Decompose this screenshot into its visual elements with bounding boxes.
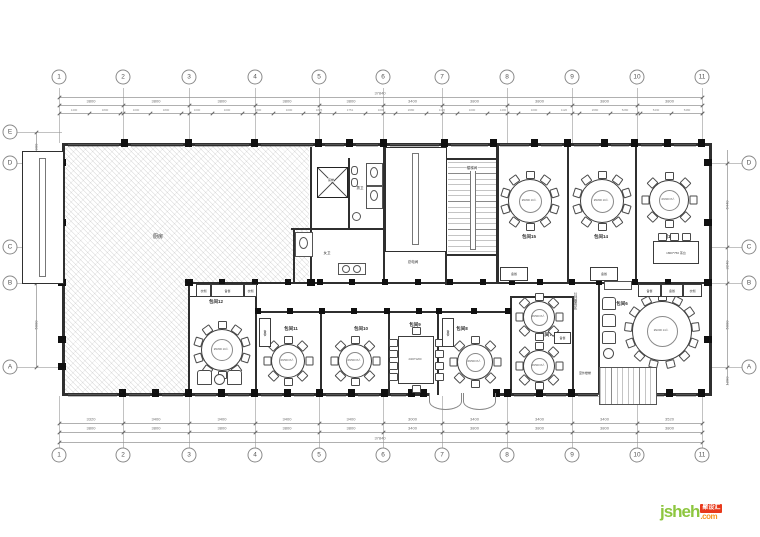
dimension-tick [57,440,61,444]
dimension-tick [210,111,214,115]
chair [515,313,523,322]
grid-bubble-bottom: 6 [376,448,391,463]
main-stair-rail [412,153,419,245]
dimension-text: 3400 [218,417,227,422]
dimension-text: 3800 [152,426,161,431]
dimension-text: 2680 [408,108,414,112]
dimension-text: 3800 [347,426,356,431]
chair [550,204,560,215]
dimension-text: 6440 [725,201,730,210]
chair [284,336,293,344]
dimension-tick [700,103,704,107]
chair [622,187,632,198]
dimension-text: 3800 [87,99,96,104]
dimension-text: 5000 [34,321,39,330]
wall [496,143,499,284]
window [514,394,534,399]
window [676,394,696,399]
dimension-text: 5280 [622,108,628,112]
service-zone-label: 公共服务区 [574,292,579,310]
window [574,144,599,149]
sofa-chair [197,370,212,385]
column [416,308,422,314]
dimension-line [59,442,702,443]
dimension-text: 2680 [592,108,598,112]
tea-table: 1800*750 茶台 [653,241,699,264]
wc-toilet [370,190,378,201]
chair [351,336,360,344]
window [541,144,562,149]
dimension-tick [505,103,509,107]
dimension-tick [121,103,125,107]
wc-sink [352,212,361,221]
chair [598,171,607,179]
tea-chair [670,233,679,241]
window [129,394,150,399]
chair [665,172,674,180]
column [536,389,543,397]
grid-bubble-top: 4 [248,70,263,85]
chair [435,362,444,370]
dimension-text: 3800 [347,99,356,104]
grid-line [17,132,62,133]
grid-bubble-top: 7 [435,70,450,85]
column [384,308,390,314]
column [218,389,225,397]
pantry-cabinet: 备餐 [442,318,454,347]
wall [320,311,322,395]
dimension-tick [381,421,385,425]
dimension-tick [700,421,704,425]
room-label: 包间12 [209,299,223,305]
grid-bubble-bottom: 8 [500,448,515,463]
dimension-text: 1800 [163,108,169,112]
column [316,389,323,397]
column [537,279,543,285]
column [568,389,575,397]
chair [471,336,480,344]
dimension-text: 3400 [347,417,356,422]
wc-sink [342,265,350,273]
dimension-text: 37840 [374,91,385,96]
watermark: jsheh 聚设汇 .com [660,503,722,522]
grid-bubble-right: A [742,360,757,375]
watermark-brand: jsheh [660,503,699,520]
chair [526,223,535,231]
tea-chair [658,233,667,241]
floor-plan-sheet: 11223344556677889910101111EDCBADCBA 3800… [0,0,760,537]
womens-wc-label: 女卫 [324,251,331,256]
chair [412,327,421,335]
dimension-tick [440,430,444,434]
grid-line [17,367,62,368]
grid-bubble-bottom: 11 [695,448,710,463]
dimension-text: 1120 [561,108,567,112]
dimension-tick [187,103,191,107]
dimension-tick [57,103,61,107]
food-lift [317,167,348,198]
dimension-text: 3240 [725,261,730,270]
chair [689,196,697,205]
column [436,308,442,314]
grid-bubble-right: B [742,276,757,291]
chair [598,223,607,231]
dimension-text: 3800 [600,426,609,431]
dimension-tick [34,365,38,369]
food-lift-label: 菜梯 [328,178,334,182]
dimension-text: 3000 [408,417,417,422]
dimension-text: 1000 [224,108,230,112]
grid-bubble-right: C [742,240,757,255]
lounge-side-table [603,348,614,359]
kitchen-area-hatch [64,146,309,282]
grid-bubble-bottom: 1 [52,448,67,463]
grid-bubble-bottom: 4 [248,448,263,463]
dimension-line [59,105,702,106]
window [641,144,662,149]
pantry-cabinet: 备餐 [259,318,271,347]
grid-bubble-right: D [742,156,757,171]
dimension-text: 37840 [374,436,385,441]
chair [263,357,271,366]
dimension-text: 3800 [283,99,292,104]
chair [515,362,523,371]
dimension-tick [34,130,38,134]
table-capacity-text: Ø2200 14人 [635,328,687,332]
dimension-text: 3400 [535,417,544,422]
grid-bubble-bottom: 7 [435,448,450,463]
dimension-text: 3800 [152,99,161,104]
column [704,159,712,166]
chair [389,362,398,370]
dimension-tick [700,440,704,444]
dimension-tick [725,161,729,165]
column [601,139,608,147]
dimension-line [59,432,702,433]
dimension-tick [635,430,639,434]
window [326,394,346,399]
dimension-text: 3400 [470,417,479,422]
cloak-cabinet: 衣帽 [196,284,211,297]
wc-urinal [351,178,358,187]
dimension-tick [57,421,61,425]
dimension-tick [121,430,125,434]
chair [241,337,251,348]
column [471,308,477,314]
table-capacity-text: Ø1500 8人 [459,359,490,363]
chair [305,357,313,366]
dimension-text: 3400 [600,417,609,422]
entrance-arch [429,393,462,410]
dimension-tick [725,245,729,249]
dimension-tick [57,95,61,99]
dimension-tick [570,421,574,425]
table-size-text: 2400*1200 [394,357,435,361]
grid-bubble-left: D [3,156,18,171]
chair [622,204,632,215]
dimension-text: 3800 [535,426,544,431]
pantry-cabinet: 备餐 [661,284,683,297]
grid-bubble-top: 11 [695,70,710,85]
dimension-text: 3800 [470,426,479,431]
dimension-line [59,97,702,98]
column [315,139,322,147]
dimension-text: 1000 [377,108,383,112]
column [255,308,261,314]
column [349,279,355,285]
wall [348,158,350,230]
window [162,394,183,399]
chair [641,196,649,205]
chair [688,337,699,348]
column [564,139,571,147]
dimension-tick [725,365,729,369]
column [704,279,712,286]
column [287,308,293,314]
dimension-tick [253,430,257,434]
wc-urinal [351,166,358,175]
room-label: 包间6 [616,301,628,307]
window [325,144,344,149]
dimension-text: 1000 [530,108,536,112]
pantry-cabinet: 备餐 [500,267,528,281]
column [447,279,453,285]
dimension-tick [440,421,444,425]
dimension-text: 1825 [316,108,322,112]
table-capacity-text: Ø1500 8人 [273,358,302,362]
dimension-line [59,113,702,114]
column [284,389,291,397]
dimension-tick [440,103,444,107]
window [451,144,488,149]
dimension-tick [121,421,125,425]
chair [435,350,444,358]
tea-chair [682,233,691,241]
dimension-text: 5430 [653,108,659,112]
wc-toilet [370,167,378,178]
table-capacity-text: Ø1500 8人 [525,314,552,318]
window [261,394,282,399]
chair [535,382,544,390]
wc-sink [353,265,361,273]
dimension-text: 3400 [408,426,417,431]
chair [555,313,563,322]
stairwell-rail [470,168,476,250]
kitchen-area-hatch-lower [64,282,188,393]
kitchen-label: 厨房 [153,233,163,240]
pantry-cabinet: 备餐 [211,284,244,297]
column [504,389,511,397]
dimension-text: 3800 [665,99,674,104]
pantry-cabinet: 备餐 [638,284,661,297]
wall [445,158,497,160]
dimension-text: 3800 [218,99,227,104]
se-outdoor-stair [599,367,657,405]
column [631,139,638,147]
dimension-tick [505,430,509,434]
grid-bubble-top: 2 [116,70,131,85]
chair [471,380,480,388]
column [380,139,387,147]
dimension-text: 1120 [439,108,445,112]
mens-wc-label: 男卫 [357,186,364,191]
dimension-tick [187,430,191,434]
grid-bubble-top: 9 [565,70,580,85]
dimension-tick [608,111,612,115]
window [356,144,378,149]
wall [445,254,497,256]
dimension-text: 5480 [683,108,689,112]
dimension-text: 1800 [102,108,108,112]
dimension-text: 1400 [500,108,506,112]
column [704,219,712,226]
grid-bubble-left: B [3,276,18,291]
dimension-text: 3400 [152,417,161,422]
dimension-text: 1290 [725,377,730,386]
dimension-text: 1000 [194,108,200,112]
dimension-tick [381,103,385,107]
column [698,389,705,397]
chair [284,378,293,386]
grid-bubble-top: 10 [630,70,645,85]
dimension-text: 1400 [71,108,77,112]
dimension-text: 3800 [535,99,544,104]
grid-bubble-bottom: 2 [116,448,131,463]
column [251,389,258,397]
chair [555,362,563,371]
chair [351,378,360,386]
chair [665,220,674,228]
lounge-chair [602,297,616,310]
dimension-tick [381,430,385,434]
dimension-text: 900 [34,144,39,151]
table-capacity-text: Ø1500 8人 [525,363,552,367]
wall [635,143,637,284]
pantry-cabinet: 备餐 [554,332,571,344]
column [382,279,388,285]
chair [330,357,338,366]
outdoor-stair-label: 室外楼梯 [579,371,591,375]
stairwell-label: 楼梯间 [467,166,478,171]
column [569,279,575,285]
grid-bubble-left: C [3,240,18,255]
window [228,394,249,399]
column [351,308,357,314]
room-label: 包间14 [594,234,608,240]
chair [535,293,544,301]
column [664,139,671,147]
grid-bubble-top: 1 [52,70,67,85]
grid-bubble-top: 8 [500,70,515,85]
electrical-room-label: 总电间 [408,260,419,265]
room-label: 包间11 [284,326,298,332]
table-capacity-text: Ø1600 8人 [651,197,685,201]
wc-toilet [299,237,308,249]
room-label: 包间15 [522,234,536,240]
dimension-tick [57,111,61,115]
dimension-tick [725,281,729,285]
chair [372,357,380,366]
column [480,279,486,285]
grid-bubble-left: E [3,125,18,140]
dimension-text: 3800 [665,426,674,431]
dimension-text: 1000 [285,108,291,112]
grid-bubble-top: 6 [376,70,391,85]
dimension-text: 1800 [255,108,261,112]
west-stair-rail [39,158,46,277]
dimension-text: 3800 [600,99,609,104]
chair [435,373,444,381]
window [578,394,599,399]
dimension-text: 3400 [408,99,417,104]
dimension-text: 3520 [665,417,674,422]
chair [624,322,633,332]
dimension-tick [57,430,61,434]
chair [389,339,398,347]
dimension-tick [635,103,639,107]
chair [526,171,535,179]
sofa-chair [227,370,242,385]
dimension-text: 1000 [469,108,475,112]
grid-bubble-bottom: 9 [565,448,580,463]
window [195,394,216,399]
chair [389,350,398,358]
wall [188,284,190,395]
column [531,139,538,147]
dimension-tick [505,421,509,425]
room-label: 包间10 [354,326,368,332]
table-capacity-text: Ø1800 10人 [510,198,548,202]
grid-bubble-left: A [3,360,18,375]
wall [709,143,712,395]
grid-bubble-bottom: 10 [630,448,645,463]
window [391,394,406,399]
lounge-chair [602,331,616,344]
grid-bubble-top: 5 [312,70,327,85]
dimension-text: 3800 [283,426,292,431]
column [420,389,427,397]
grid-bubble-bottom: 5 [312,448,327,463]
window [68,394,117,399]
column [415,279,421,285]
dimension-tick [635,421,639,425]
dimension-tick [317,430,321,434]
dimension-tick [253,103,257,107]
dimension-tick [317,103,321,107]
table-capacity-text: Ø1500 8人 [340,358,369,362]
column [441,139,448,147]
dimension-text: 3320 [87,417,96,422]
dimension-tick [187,421,191,425]
dimension-tick [700,95,704,99]
table-capacity-text: Ø1800 10人 [203,347,239,351]
cloak-cabinet: 衣帽 [683,284,702,297]
chair [493,358,501,367]
watermark-tld: .com [700,513,717,522]
chair [535,333,544,341]
console-bench [604,281,632,290]
window [546,394,566,399]
dimension-tick [570,430,574,434]
dimension-text: 3400 [283,417,292,422]
dimension-tick [253,421,257,425]
dimension-tick [700,111,704,115]
column [704,336,712,343]
column [348,389,355,397]
room-label: 包间8 [456,326,468,332]
dimension-tick [700,430,704,434]
dimension-tick [455,111,459,115]
